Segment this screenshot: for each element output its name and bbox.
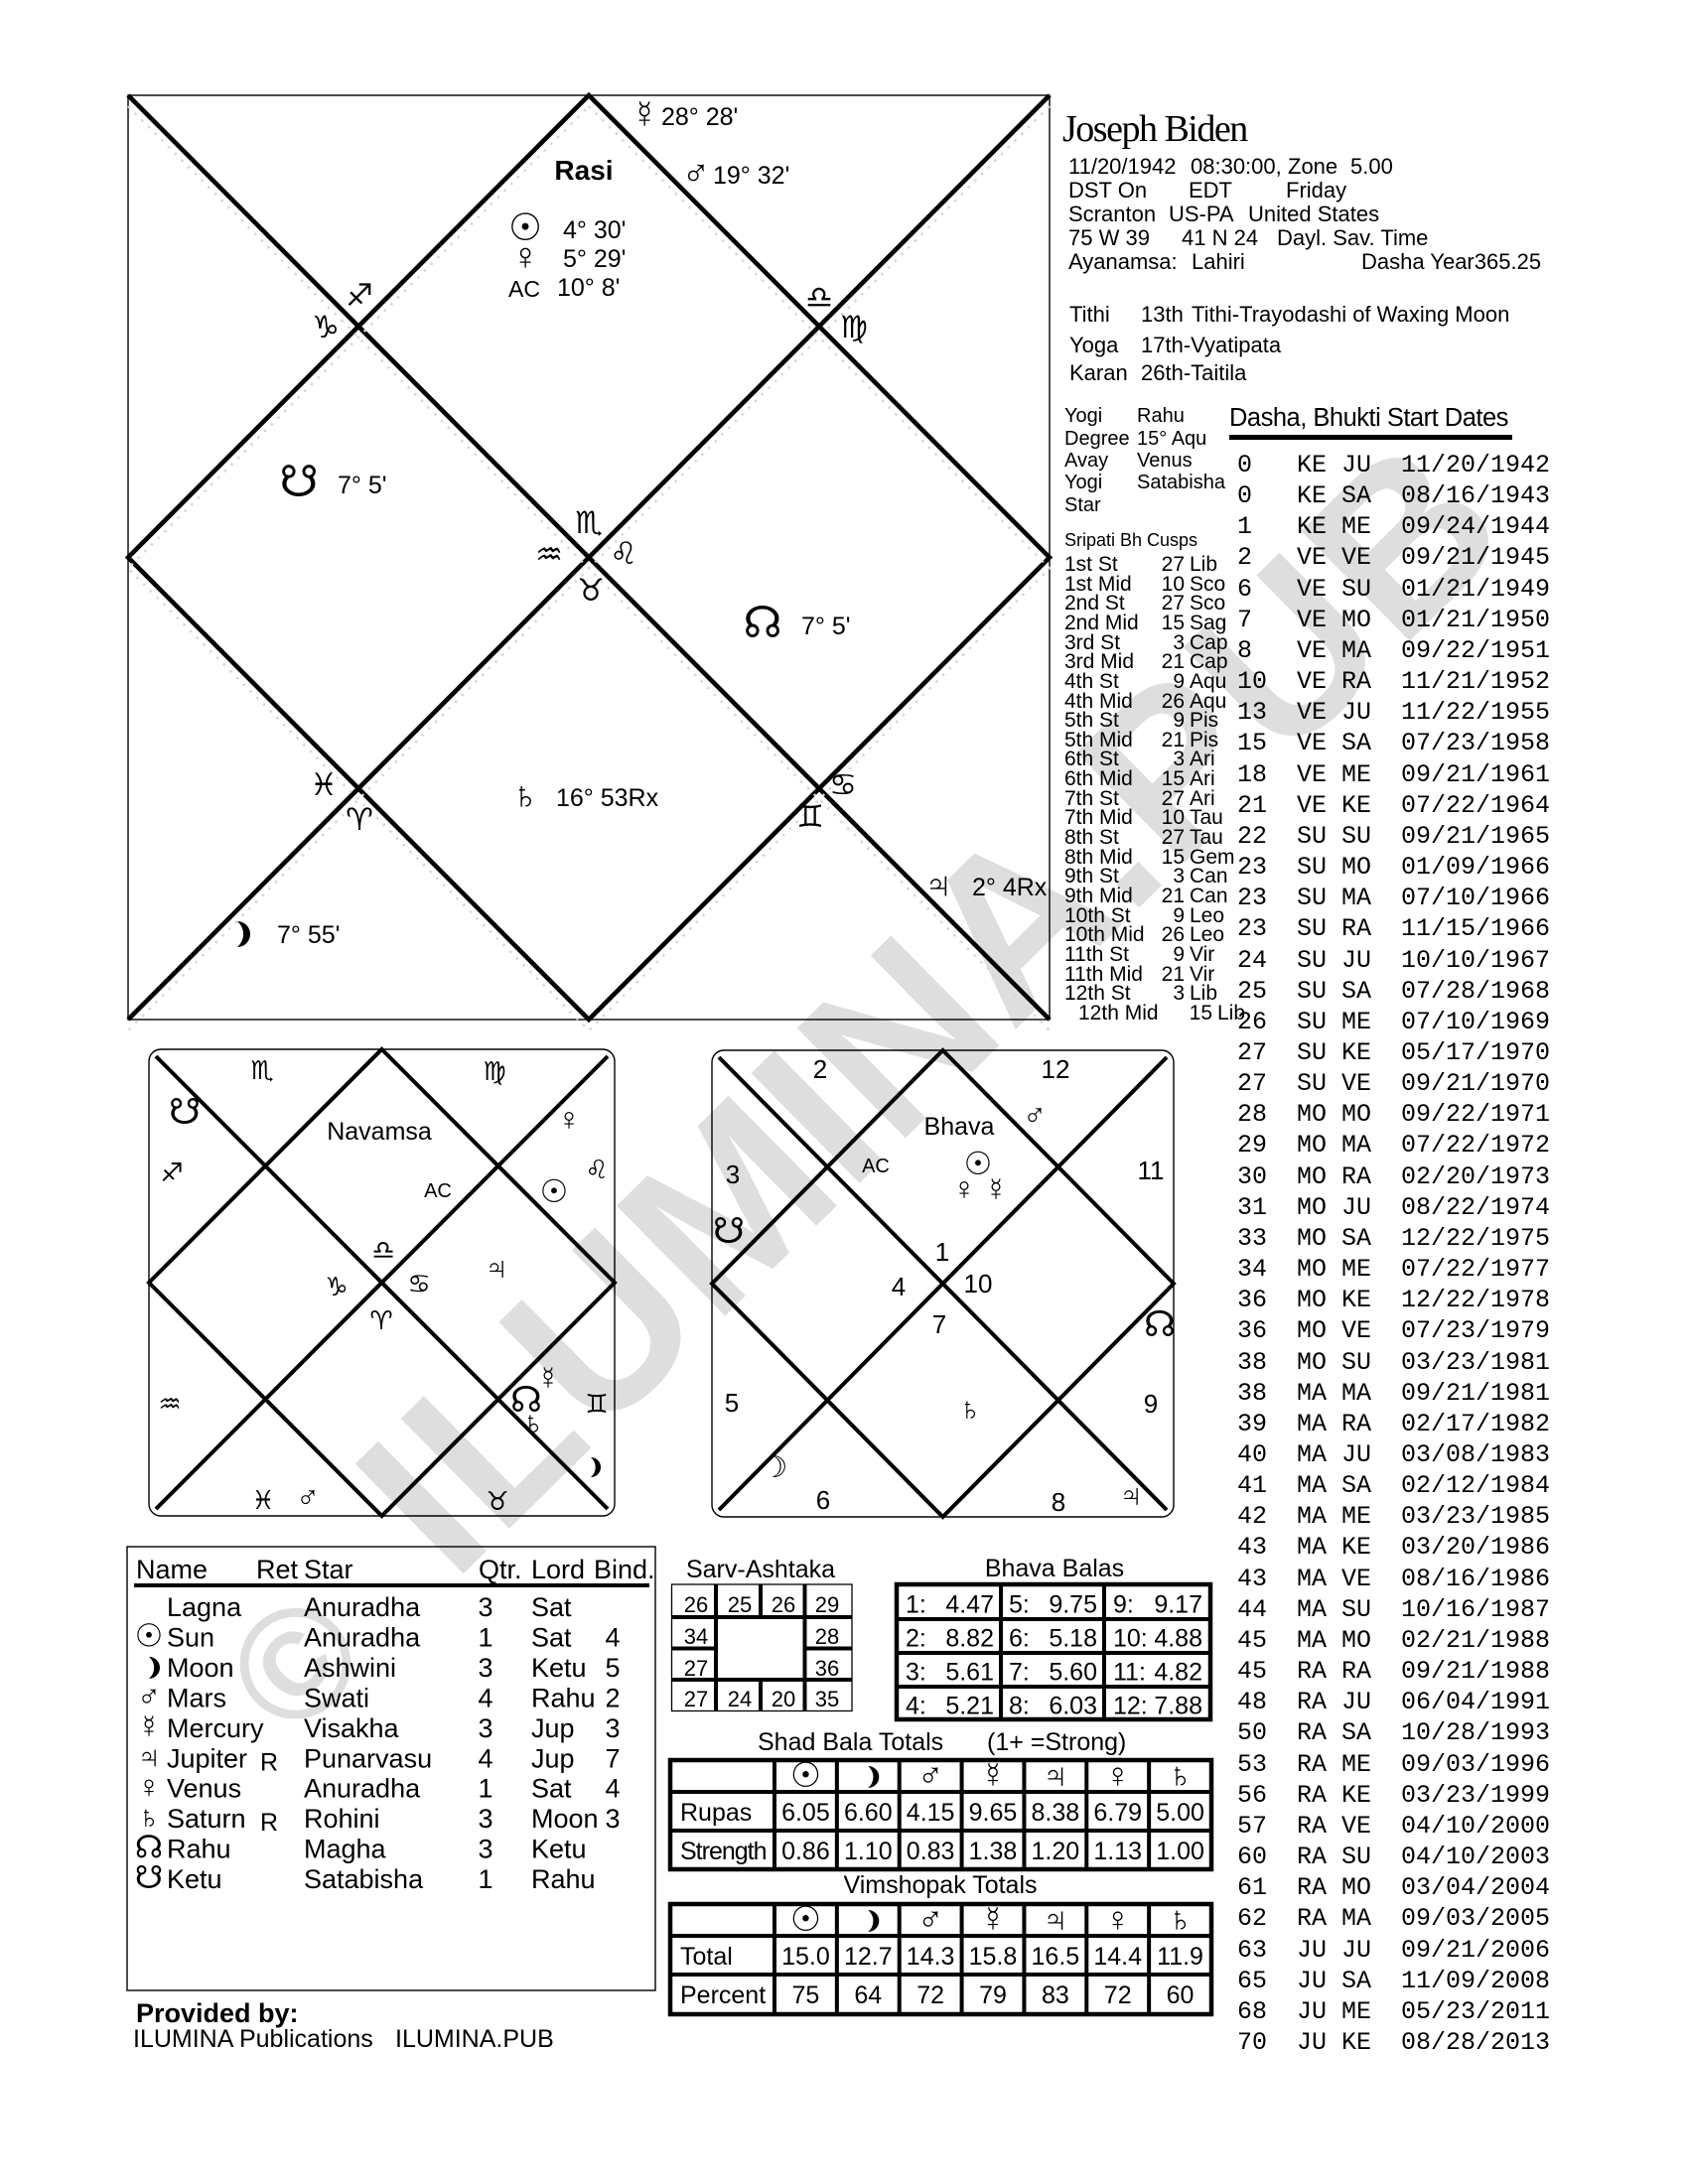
- svg-text:♃: ♃: [1043, 1900, 1068, 1939]
- svg-text:Mercury: Mercury: [167, 1713, 264, 1743]
- svg-text:8.82: 8.82: [945, 1625, 994, 1653]
- svg-text:36: 36: [815, 1656, 839, 1681]
- svg-text:14.4: 14.4: [1093, 1943, 1142, 1971]
- svg-text:16° 53Rx: 16° 53Rx: [556, 784, 659, 812]
- svg-text:Navamsa: Navamsa: [327, 1118, 432, 1146]
- svg-text:♂: ♂: [1023, 1097, 1047, 1133]
- svg-text:4: 4: [605, 1622, 620, 1652]
- svg-text:☋: ☋: [279, 458, 318, 506]
- svg-text:3: 3: [605, 1713, 620, 1743]
- svg-text:6:: 6:: [1009, 1625, 1030, 1653]
- svg-text:1: 1: [478, 1864, 492, 1894]
- svg-text:♓︎: ♓︎: [310, 767, 338, 802]
- svg-text:0.83: 0.83: [907, 1838, 955, 1865]
- svg-text:10:: 10:: [1113, 1625, 1148, 1653]
- svg-text:2° 4Rx: 2° 4Rx: [972, 874, 1048, 901]
- svg-text:♑︎: ♑︎: [312, 310, 340, 344]
- svg-text:9:: 9:: [1113, 1591, 1134, 1619]
- svg-text:♃: ♃: [1043, 1756, 1068, 1795]
- svg-text:2: 2: [605, 1683, 620, 1712]
- svg-text:Anuradha: Anuradha: [304, 1622, 421, 1652]
- svg-text:♓︎: ♓︎: [251, 1485, 274, 1515]
- svg-text:15.0: 15.0: [781, 1943, 830, 1971]
- svg-text:1: 1: [478, 1774, 492, 1804]
- svg-text:5:: 5:: [1009, 1591, 1030, 1619]
- svg-text:6.05: 6.05: [781, 1799, 830, 1827]
- svg-text:7.88: 7.88: [1154, 1693, 1202, 1720]
- svg-text:2:: 2:: [906, 1625, 926, 1653]
- svg-text:♀: ♀: [557, 1101, 581, 1137]
- svg-text:8.38: 8.38: [1032, 1799, 1080, 1827]
- svg-text:Satabisha: Satabisha: [304, 1864, 424, 1894]
- svg-text:6.03: 6.03: [1049, 1693, 1097, 1720]
- svg-text:10° 8': 10° 8': [557, 274, 620, 302]
- svg-text:Ashwini: Ashwini: [304, 1653, 396, 1683]
- svg-text:♉︎: ♉︎: [577, 573, 605, 608]
- svg-text:Total: Total: [680, 1943, 733, 1971]
- svg-text:6.60: 6.60: [844, 1799, 893, 1827]
- svg-text:4: 4: [478, 1743, 492, 1773]
- svg-text:16.5: 16.5: [1032, 1943, 1080, 1971]
- svg-text:♌︎: ♌︎: [585, 1155, 608, 1184]
- svg-text:Anuradha: Anuradha: [304, 1774, 421, 1804]
- svg-text:5: 5: [725, 1388, 739, 1418]
- svg-text:☿: ☿: [631, 94, 659, 136]
- svg-text:20: 20: [772, 1687, 795, 1711]
- svg-text:Bind.: Bind.: [594, 1555, 655, 1584]
- svg-text:Qtr.: Qtr.: [479, 1555, 522, 1584]
- svg-text:Punarvasu: Punarvasu: [304, 1743, 432, 1773]
- svg-text:3:: 3:: [906, 1659, 926, 1687]
- svg-text:3: 3: [605, 1804, 620, 1834]
- svg-text:26: 26: [684, 1592, 708, 1617]
- svg-text:1.10: 1.10: [844, 1838, 893, 1865]
- svg-text:7° 55': 7° 55': [277, 921, 340, 949]
- svg-text:ILUMINA.PUB: ILUMINA.PUB: [395, 2025, 554, 2053]
- svg-text:Rohini: Rohini: [304, 1804, 380, 1834]
- svg-text:Moon: Moon: [531, 1804, 599, 1834]
- svg-text:♂: ♂: [917, 1756, 943, 1795]
- svg-text:9.65: 9.65: [969, 1799, 1018, 1827]
- svg-text:☉: ☉: [790, 1756, 821, 1795]
- svg-text:4: 4: [892, 1272, 906, 1301]
- svg-text:19° 32': 19° 32': [713, 162, 789, 190]
- svg-text:1: 1: [478, 1622, 492, 1652]
- svg-text:Sun: Sun: [167, 1622, 214, 1652]
- svg-text:3: 3: [478, 1653, 492, 1683]
- svg-text:♑︎: ♑︎: [325, 1272, 348, 1301]
- svg-text:Star: Star: [304, 1555, 353, 1584]
- svg-text:7° 5': 7° 5': [801, 613, 851, 640]
- svg-text:Rahu: Rahu: [531, 1864, 596, 1894]
- svg-text:14.3: 14.3: [907, 1943, 955, 1971]
- svg-text:♃: ♃: [485, 1250, 508, 1286]
- svg-text:6: 6: [816, 1485, 830, 1515]
- svg-text:27: 27: [684, 1687, 708, 1711]
- svg-text:2: 2: [813, 1054, 827, 1084]
- svg-text:♒︎: ♒︎: [158, 1389, 181, 1419]
- svg-text:7° 5': 7° 5': [338, 472, 387, 499]
- svg-text:Bhava: Bhava: [924, 1113, 995, 1141]
- svg-text:3: 3: [478, 1713, 492, 1743]
- svg-text:1:: 1:: [906, 1591, 926, 1619]
- svg-text:60: 60: [1167, 1981, 1195, 2009]
- svg-text:Provided by:: Provided by:: [136, 1998, 299, 2028]
- svg-text:27: 27: [684, 1656, 708, 1681]
- svg-text:ILUMINA Publications: ILUMINA Publications: [133, 2025, 373, 2053]
- svg-text:♂: ♂: [682, 153, 711, 195]
- svg-text:Shad Bala Totals: Shad Bala Totals: [758, 1728, 943, 1756]
- svg-text:4.88: 4.88: [1154, 1625, 1202, 1653]
- svg-text:☉: ☉: [790, 1900, 821, 1939]
- svg-text:♋︎: ♋︎: [407, 1269, 430, 1298]
- svg-text:34: 34: [684, 1624, 708, 1649]
- svg-text:1: 1: [935, 1237, 949, 1267]
- svg-text:♎︎: ♎︎: [805, 280, 833, 315]
- svg-text:♂: ♂: [296, 1479, 320, 1515]
- svg-text:5.60: 5.60: [1049, 1659, 1097, 1687]
- svg-text:Visakha: Visakha: [304, 1713, 400, 1743]
- svg-text:3: 3: [478, 1592, 492, 1622]
- svg-text:75: 75: [792, 1981, 820, 2009]
- svg-text:3: 3: [478, 1835, 492, 1864]
- svg-text:1.20: 1.20: [1032, 1838, 1080, 1865]
- svg-text:Jup: Jup: [531, 1743, 575, 1773]
- svg-text:R: R: [260, 1748, 278, 1776]
- svg-text:Swati: Swati: [304, 1683, 369, 1712]
- svg-text:7: 7: [932, 1309, 946, 1339]
- svg-text:4.47: 4.47: [945, 1591, 994, 1619]
- svg-text:5.21: 5.21: [945, 1693, 994, 1720]
- svg-text:♄: ♄: [1167, 1900, 1193, 1939]
- svg-text:4.15: 4.15: [907, 1799, 955, 1827]
- svg-text:8:: 8:: [1009, 1693, 1030, 1720]
- svg-text:28° 28': 28° 28': [661, 103, 738, 131]
- svg-text:26: 26: [772, 1592, 795, 1617]
- svg-text:1.38: 1.38: [969, 1838, 1018, 1865]
- svg-text:24: 24: [728, 1687, 752, 1711]
- svg-text:Ret: Ret: [256, 1555, 299, 1584]
- svg-text:4.82: 4.82: [1154, 1659, 1202, 1687]
- svg-text:12.7: 12.7: [844, 1943, 893, 1971]
- svg-text:Jupiter: Jupiter: [167, 1743, 247, 1773]
- svg-text:7:: 7:: [1009, 1659, 1030, 1687]
- svg-text:Lagna: Lagna: [167, 1592, 242, 1622]
- svg-text:♀: ♀: [1105, 1756, 1131, 1795]
- svg-text:♐︎: ♐︎: [160, 1158, 183, 1187]
- svg-text:♊︎: ♊︎: [796, 799, 824, 834]
- svg-text:♄: ♄: [521, 1405, 545, 1440]
- svg-text:25: 25: [728, 1592, 752, 1617]
- svg-text:♊︎: ♊︎: [585, 1389, 608, 1419]
- svg-text:1.00: 1.00: [1156, 1838, 1204, 1865]
- svg-text:Bhava Balas: Bhava Balas: [985, 1555, 1124, 1582]
- svg-text:♈︎: ♈︎: [369, 1305, 392, 1335]
- svg-text:83: 83: [1042, 1981, 1069, 2009]
- svg-text:28: 28: [815, 1624, 839, 1649]
- svg-text:5.00: 5.00: [1156, 1799, 1204, 1827]
- svg-text:10: 10: [964, 1269, 993, 1298]
- svg-text:♀: ♀: [1105, 1900, 1131, 1939]
- svg-text:64: 64: [854, 1981, 882, 2009]
- svg-text:5: 5: [605, 1653, 620, 1683]
- svg-text:Magha: Magha: [304, 1835, 387, 1864]
- svg-text:☿: ☿: [980, 1756, 1006, 1795]
- svg-text:☋: ☋: [135, 1859, 163, 1895]
- svg-text:♂: ♂: [917, 1900, 943, 1939]
- svg-text:♏︎: ♏︎: [250, 1055, 273, 1085]
- svg-text:4: 4: [605, 1774, 620, 1804]
- svg-text:1.13: 1.13: [1093, 1838, 1142, 1865]
- svg-text:12: 12: [1042, 1054, 1070, 1084]
- svg-text:♎︎: ♎︎: [371, 1235, 394, 1265]
- svg-text:4:: 4:: [906, 1693, 926, 1720]
- svg-text:☽: ☽: [762, 1451, 788, 1484]
- svg-text:8: 8: [1052, 1487, 1065, 1517]
- svg-text:Ketu: Ketu: [531, 1835, 587, 1864]
- svg-text:♏︎: ♏︎: [575, 505, 603, 540]
- svg-text:11:: 11:: [1113, 1659, 1146, 1687]
- svg-text:35: 35: [815, 1687, 839, 1711]
- svg-text:Rupas: Rupas: [680, 1799, 752, 1827]
- svg-text:Sat: Sat: [531, 1622, 572, 1652]
- svg-text:Strength: Strength: [680, 1838, 767, 1865]
- svg-text:72: 72: [916, 1981, 944, 2009]
- svg-text:♄: ♄: [1167, 1756, 1193, 1795]
- svg-text:9.17: 9.17: [1154, 1591, 1202, 1619]
- svg-text:Jup: Jup: [531, 1713, 575, 1743]
- svg-text:Name: Name: [136, 1555, 208, 1584]
- svg-text:79: 79: [979, 1981, 1007, 2009]
- svg-text:AC: AC: [862, 1156, 890, 1177]
- svg-text:♀: ♀: [952, 1170, 976, 1206]
- svg-text:Moon: Moon: [167, 1653, 234, 1683]
- svg-text:9.75: 9.75: [1049, 1591, 1097, 1619]
- svg-text:☉: ☉: [135, 1617, 164, 1653]
- svg-text:5.61: 5.61: [945, 1659, 994, 1687]
- svg-text:♃: ♃: [1119, 1477, 1143, 1513]
- svg-text:Venus: Venus: [167, 1774, 241, 1804]
- svg-text:♈︎: ♈︎: [346, 802, 373, 837]
- svg-text:7: 7: [605, 1743, 620, 1773]
- svg-text:Sat: Sat: [531, 1774, 572, 1804]
- svg-text:☿: ☿: [980, 1900, 1006, 1939]
- svg-text:♋︎: ♋︎: [829, 767, 857, 802]
- svg-text:AC: AC: [508, 276, 540, 302]
- svg-text:♉︎: ♉︎: [486, 1486, 508, 1516]
- svg-text:☿: ☿: [984, 1171, 1008, 1207]
- svg-text:Rahu: Rahu: [167, 1835, 231, 1864]
- svg-text:9: 9: [1144, 1389, 1158, 1419]
- svg-text:Mars: Mars: [167, 1683, 226, 1712]
- svg-text:Saturn: Saturn: [167, 1804, 246, 1834]
- svg-text:♀: ♀: [511, 236, 540, 278]
- svg-text:♌︎: ♌︎: [610, 536, 637, 571]
- svg-text:Ketu: Ketu: [167, 1864, 222, 1894]
- svg-text:☋: ☋: [713, 1210, 745, 1251]
- svg-text:♒︎: ♒︎: [535, 537, 563, 572]
- svg-text:11.9: 11.9: [1157, 1943, 1203, 1971]
- svg-text:4° 30': 4° 30': [563, 216, 626, 244]
- svg-text:☋: ☋: [169, 1091, 201, 1132]
- svg-text:Sat: Sat: [531, 1592, 572, 1622]
- svg-text:♍︎: ♍︎: [840, 310, 868, 344]
- svg-text:72: 72: [1104, 1981, 1132, 2009]
- svg-text:(1+ =Strong): (1+ =Strong): [987, 1728, 1126, 1756]
- svg-text:Vimshopak Totals: Vimshopak Totals: [843, 1871, 1037, 1899]
- svg-text:6.79: 6.79: [1093, 1799, 1142, 1827]
- svg-text:♐︎: ♐︎: [346, 278, 373, 313]
- svg-text:☉: ☉: [540, 1173, 569, 1209]
- svg-text:4: 4: [478, 1683, 492, 1712]
- svg-text:♃: ♃: [924, 865, 953, 906]
- svg-text:Rahu: Rahu: [531, 1683, 596, 1712]
- svg-text:R: R: [260, 1809, 278, 1837]
- svg-text:0.86: 0.86: [781, 1838, 830, 1865]
- svg-text:12:: 12:: [1113, 1693, 1148, 1720]
- svg-text:15.8: 15.8: [969, 1943, 1018, 1971]
- svg-text:☊: ☊: [1144, 1303, 1176, 1344]
- svg-text:Sarv-Ashtaka: Sarv-Ashtaka: [686, 1556, 835, 1583]
- svg-text:♄: ♄: [958, 1391, 982, 1427]
- svg-text:♄: ♄: [511, 775, 540, 817]
- svg-text:5° 29': 5° 29': [563, 245, 626, 273]
- svg-text:Rasi: Rasi: [554, 155, 613, 186]
- svg-text:Percent: Percent: [680, 1981, 766, 2009]
- svg-text:29: 29: [815, 1592, 839, 1617]
- svg-text:Lord: Lord: [531, 1555, 585, 1584]
- svg-text:Anuradha: Anuradha: [304, 1592, 421, 1622]
- svg-text:3: 3: [726, 1160, 740, 1189]
- svg-text:3: 3: [478, 1804, 492, 1834]
- svg-text:11: 11: [1138, 1156, 1165, 1185]
- svg-text:☊: ☊: [743, 599, 781, 647]
- svg-text:♍︎: ♍︎: [483, 1056, 505, 1086]
- svg-text:AC: AC: [424, 1180, 452, 1202]
- svg-text:Ketu: Ketu: [531, 1653, 587, 1683]
- svg-text:5.18: 5.18: [1049, 1625, 1097, 1653]
